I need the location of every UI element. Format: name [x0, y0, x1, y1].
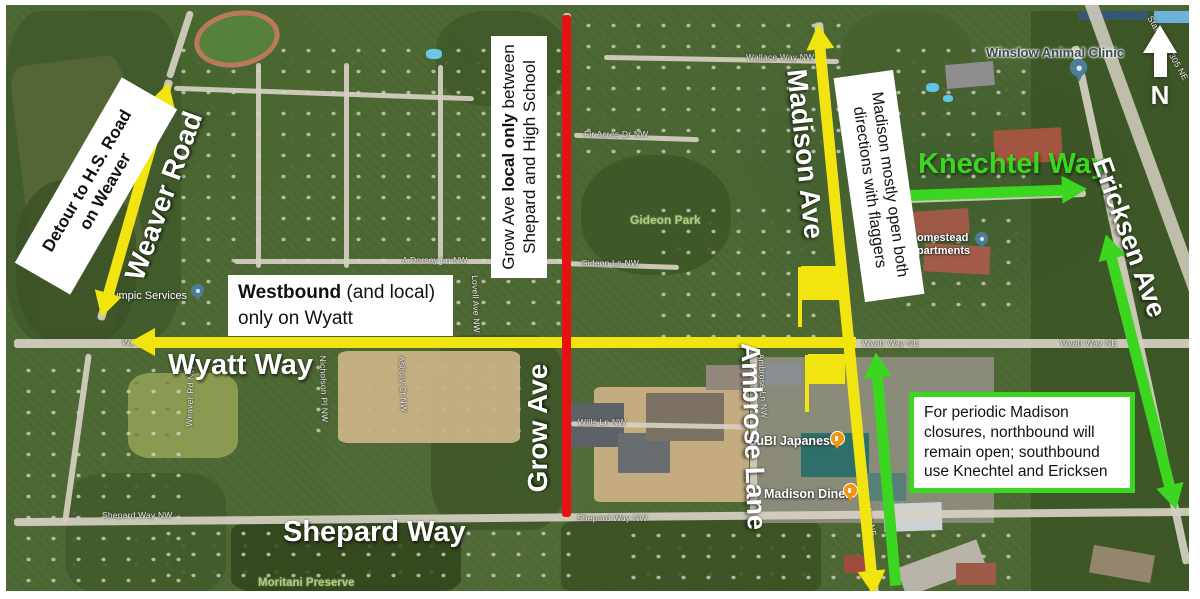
street-label-a-dorsey: A Dorsey Ln NW	[402, 255, 468, 265]
ambrose-lane-label: Ambrose Lane	[734, 342, 771, 527]
grow-ave-closure-line	[562, 15, 571, 517]
street-label-wills: Wills Ln NW	[578, 417, 626, 427]
wyatt-note-box: Westbound (and local) only on Wyatt	[228, 275, 453, 336]
location-pin-icon	[1070, 59, 1088, 77]
street-label-wyatt-ne-right: Wyatt Way NE	[1060, 338, 1117, 348]
location-pin-icon	[975, 232, 988, 245]
street-label-fir-acres: Fir Acres Dr NW	[584, 129, 648, 139]
grow-ave-label: Grow Ave	[522, 363, 554, 493]
detour-map-figure: { "colors": { "arrow_yellow": "#f2e50f",…	[0, 0, 1200, 599]
street-label-wyatt-ne-left: Wyatt Way NE	[862, 338, 919, 348]
satellite-map: Wallace Way NW Fir Acres Dr NW Gideon Ln…	[6, 5, 1189, 591]
street-label-gideon-ln: Gideon Ln NW	[581, 258, 639, 268]
north-label: N	[1132, 80, 1188, 111]
north-arrow-icon: N	[1132, 25, 1188, 111]
knechtel-way-label: Knechtel Way	[918, 148, 1107, 181]
street-label-wallace: Wallace Way NW	[746, 52, 814, 62]
poi-label-gideon-park: Gideon Park	[630, 213, 701, 227]
poi-label-winslow-animal-clinic: Winslow Animal Clinic	[986, 45, 1124, 60]
poi-label-moritani-preserve: Moritani Preserve	[258, 577, 355, 589]
location-pin-icon	[191, 284, 204, 297]
poi-label-madison-diner: Madison Diner	[764, 487, 850, 501]
street-label-shepard-nw-left: Shepard Way NW	[102, 510, 173, 520]
street-label-shepard-nw-mid: Shepard Way NW	[577, 513, 648, 523]
wyatt-way-label: Wyatt Way	[168, 349, 313, 382]
knechtel-ericksen-note-box: For periodic Madison closures, northboun…	[909, 392, 1135, 493]
grow-note-box: Grow Ave local only between Shepard and …	[491, 36, 547, 278]
shepard-way-label: Shepard Way	[283, 516, 466, 549]
